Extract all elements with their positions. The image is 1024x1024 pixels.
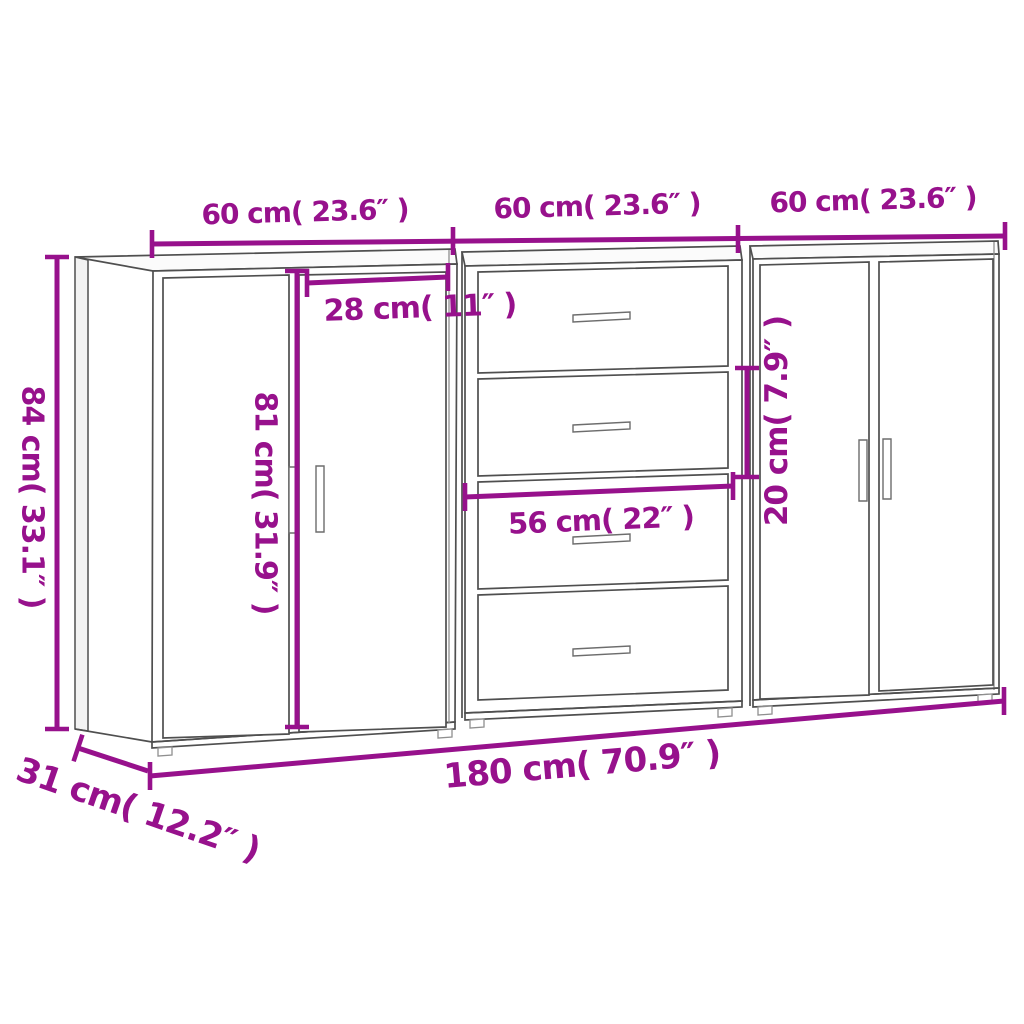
cabinet-left-foot-right — [438, 729, 452, 738]
dim-label-top-width-2: 60 cm( 23.6″ ) — [493, 187, 701, 226]
cabinet-middle-foot-left — [470, 719, 484, 728]
dim-label-total-width: 180 cm( 70.9″ ) — [442, 733, 722, 797]
cabinet-middle-drawer-4 — [478, 586, 728, 700]
cabinet-right-door-right — [879, 259, 993, 691]
diagram-canvas: 60 cm( 23.6″ ) 60 cm( 23.6″ ) 60 cm( 23.… — [0, 0, 1024, 1024]
dim-label-top-width-3: 60 cm( 23.6″ ) — [769, 181, 977, 220]
dim-label-total-height: 84 cm( 33.1″ ) — [15, 386, 50, 609]
cabinet-right-foot-left — [758, 706, 772, 715]
cabinet-left-foot-left — [158, 747, 172, 756]
cabinet-left-side-panel — [75, 257, 88, 731]
dim-label-door-height: 81 cm( 31.9″ ) — [248, 392, 283, 615]
cabinet-right-door-left-handle — [859, 440, 867, 501]
cabinet-right-door-right-handle — [883, 439, 891, 499]
cabinet-left-bottom-edge — [75, 729, 152, 742]
dim-label-door-width: 28 cm( 11″ ) — [323, 287, 517, 329]
cabinet-left-door-right-handle — [316, 466, 324, 532]
dim-label-drawer-height: 20 cm( 7.9″ ) — [759, 316, 795, 526]
furniture-dimension-diagram: 60 cm( 23.6″ ) 60 cm( 23.6″ ) 60 cm( 23.… — [0, 0, 1024, 1024]
dim-depth-line — [78, 748, 148, 771]
cabinet-middle-foot-right — [718, 708, 732, 717]
dim-label-top-width-1: 60 cm( 23.6″ ) — [201, 193, 409, 232]
